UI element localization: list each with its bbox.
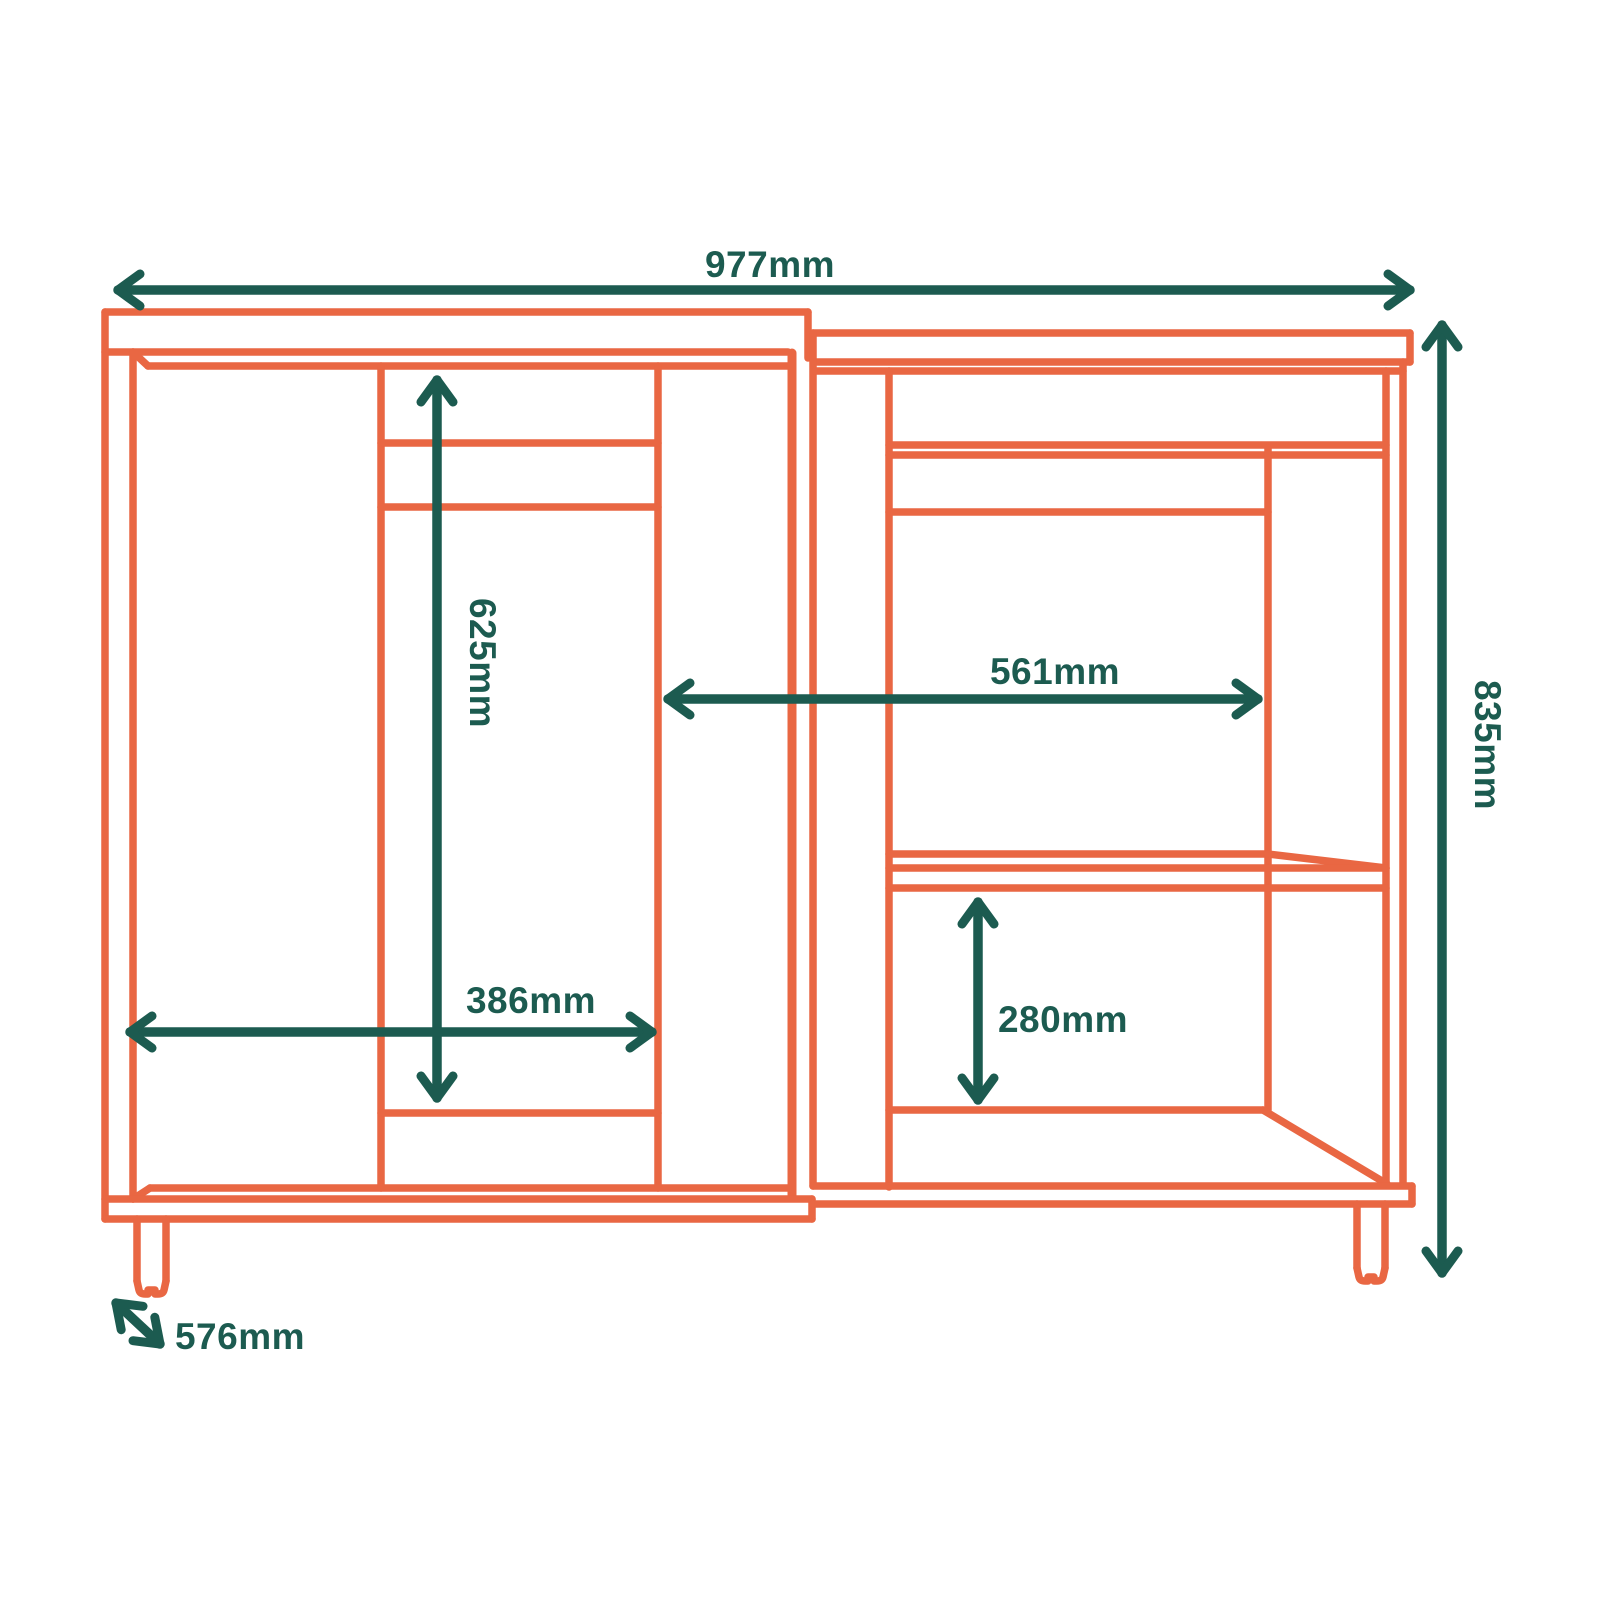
overall-height-label: 835mm <box>1467 680 1508 810</box>
left-leg-foot <box>137 1281 166 1294</box>
left-compartment-width-label: 386mm <box>466 980 596 1021</box>
right-lower-compartment-height-label: 280mm <box>998 999 1128 1040</box>
right-unit <box>813 333 1412 1281</box>
overall-width-label: 977mm <box>705 244 835 285</box>
left-compartment-height-label: 625mm <box>462 598 503 728</box>
left-unit <box>105 312 812 1294</box>
depth-arrow <box>116 1303 160 1344</box>
diagram-canvas: 977mm 835mm 625mm 561mm 386mm 280mm <box>0 0 1600 1601</box>
right-lower-compartment-height-dimension: 280mm <box>978 902 1128 1100</box>
overall-width-dimension: 977mm <box>118 244 1410 290</box>
right-floor-corner-diagonal <box>1263 1110 1387 1184</box>
right-leg <box>1357 1204 1385 1268</box>
left-leg <box>137 1219 166 1281</box>
right-compartment-width-label: 561mm <box>990 651 1120 692</box>
left-compartment-width-dimension: 386mm <box>130 980 652 1032</box>
right-compartment-width-dimension: 561mm <box>668 651 1258 699</box>
depth-dimension: 576mm <box>116 1303 305 1357</box>
right-leg-foot <box>1357 1268 1385 1281</box>
depth-label: 576mm <box>175 1316 305 1357</box>
overall-height-dimension: 835mm <box>1442 325 1508 1273</box>
cabinet-outline <box>105 312 1412 1294</box>
cabinet-dimension-diagram: 977mm 835mm 625mm 561mm 386mm 280mm <box>0 0 1600 1601</box>
